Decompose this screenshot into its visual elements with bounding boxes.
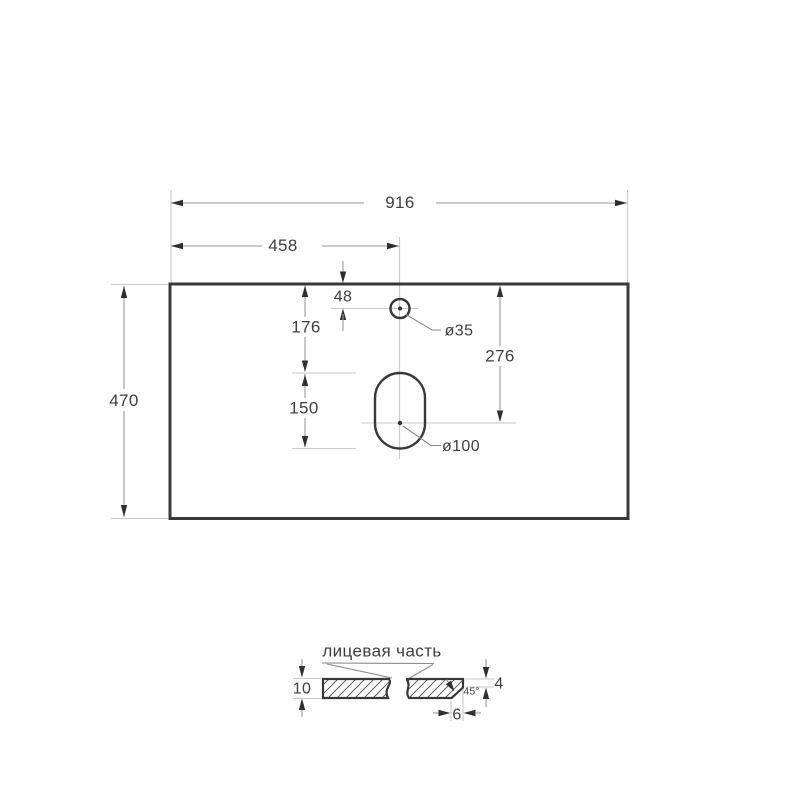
dim-center-offset: 458 xyxy=(171,236,399,255)
section-piece-left xyxy=(323,679,390,698)
dim-drain-slot-height-label: 150 xyxy=(289,399,319,418)
arrow-down xyxy=(302,436,308,448)
extension-lines-plan xyxy=(111,190,628,519)
section-piece-right xyxy=(406,679,463,698)
dim-center-offset-label: 458 xyxy=(268,236,298,255)
arrow-up xyxy=(483,688,489,700)
drawing-canvas: ø35 ø100 916 458 470 48 xyxy=(0,0,800,800)
dim-thickness: 10 xyxy=(293,659,312,717)
arrow-down xyxy=(340,272,346,284)
arrow-up xyxy=(497,286,503,298)
section-face-callout: лицевая часть xyxy=(322,642,442,680)
arrow-left xyxy=(171,243,183,249)
arrow-down xyxy=(299,666,305,678)
dim-depth-label: 470 xyxy=(109,391,139,410)
faucet-hole-leader-line xyxy=(406,315,441,331)
dim-drain-slot-height: 150 xyxy=(289,374,319,448)
dim-depth: 470 xyxy=(109,286,139,517)
dim-chamfer-depth-label: 6 xyxy=(452,707,461,724)
dim-drain-center: 276 xyxy=(485,286,515,423)
arrow-right xyxy=(439,710,451,716)
face-leader-right xyxy=(408,665,433,680)
arrow-up xyxy=(121,286,127,298)
arrow-up xyxy=(302,375,308,387)
dim-drain-center-label: 276 xyxy=(485,347,515,366)
arrow-down xyxy=(302,361,308,373)
arrow-up xyxy=(299,699,305,711)
faucet-hole-center-dot xyxy=(398,307,402,311)
arrow-up xyxy=(302,286,308,298)
dim-chamfer-depth: 6 xyxy=(433,707,481,724)
technical-drawing-svg: ø35 ø100 916 458 470 48 xyxy=(0,0,800,800)
dim-front-edge: 4 xyxy=(483,659,504,707)
dim-faucet-offset: 48 xyxy=(334,261,353,331)
drain-slot-diameter-label: ø100 xyxy=(442,438,480,455)
arrow-down xyxy=(121,505,127,517)
dim-faucet-zone-label: 176 xyxy=(291,318,321,337)
arrow-left xyxy=(171,200,183,206)
drain-slot-center-dot xyxy=(398,421,402,425)
arrow-right xyxy=(387,243,399,249)
faucet-hole-diameter-label: ø35 xyxy=(445,323,474,340)
arrow-right xyxy=(615,200,627,206)
arrow-down xyxy=(497,411,503,423)
face-leader-left xyxy=(327,664,392,678)
dim-thickness-label: 10 xyxy=(293,681,312,698)
dim-overall-width: 916 xyxy=(171,193,627,212)
arrow-down xyxy=(483,667,489,679)
drain-slot: ø100 xyxy=(375,373,480,455)
arrow-left xyxy=(464,710,476,716)
faucet-hole: ø35 xyxy=(391,299,474,340)
dim-faucet-offset-label: 48 xyxy=(334,289,353,306)
dim-faucet-zone: 176 xyxy=(291,286,321,373)
section-face-label: лицевая часть xyxy=(322,642,441,661)
dim-chamfer-angle-label: 45° xyxy=(463,686,479,698)
dim-front-edge-label: 4 xyxy=(494,676,503,693)
face-underline xyxy=(322,663,434,664)
dim-overall-width-label: 916 xyxy=(385,193,415,212)
